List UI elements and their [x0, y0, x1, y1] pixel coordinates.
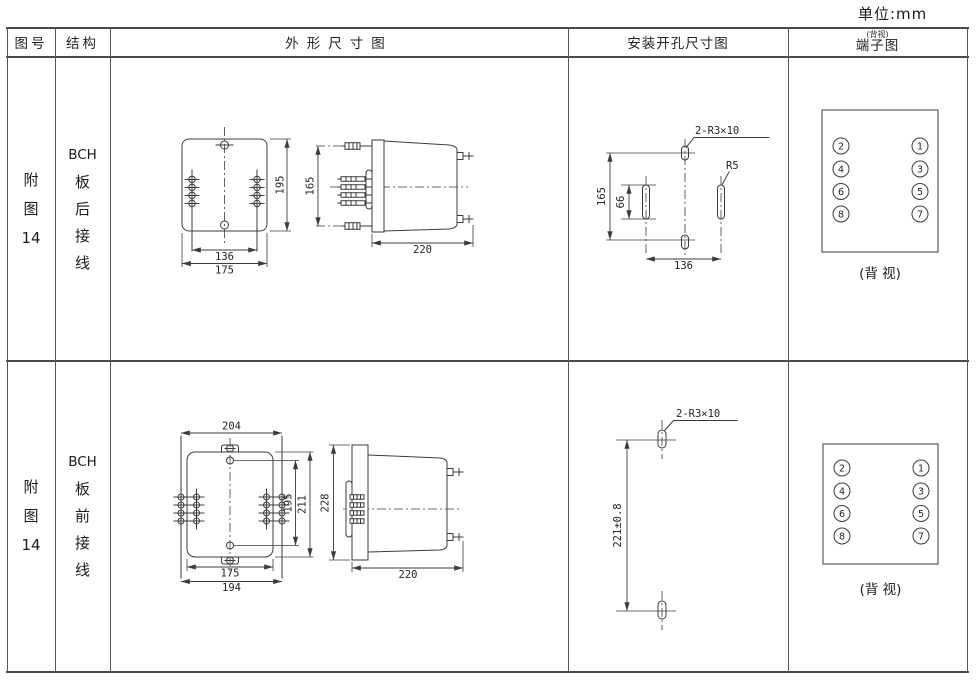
dim-hole-spacing: 221±0.8: [612, 503, 624, 547]
svg-text:6: 6: [839, 509, 845, 520]
dim-side-height2: 228: [320, 494, 332, 513]
dim-front-height: 195: [275, 176, 287, 195]
row2-terminal-diagram: 2 4 6 8 1 3 5 7 (背 视): [788, 361, 968, 672]
svg-text:5: 5: [917, 187, 923, 198]
svg-text:1: 1: [918, 463, 924, 474]
unit-label: 单位:mm: [858, 3, 927, 24]
row1-figure-no: 附 图 14: [7, 57, 55, 360]
header-terminal-label: 端子图: [856, 39, 900, 53]
dim-bolt-span: 136: [215, 251, 234, 263]
svg-text:7: 7: [917, 209, 923, 220]
row1-terminals: 2 4 6 8 1 3 5 7: [833, 138, 928, 222]
svg-text:7: 7: [918, 531, 924, 542]
header-structure: 结构: [55, 27, 110, 56]
dim-stud-span-top: 204: [222, 421, 241, 433]
row2-mounting-drawing: 2-R3×10 221±0.8: [569, 361, 786, 672]
dim-front-width: 175: [215, 265, 234, 277]
dim-side-height: 165: [305, 177, 317, 196]
row2-structure: BCH 板 前 接 线: [55, 361, 110, 671]
header-figure-no: 图号: [7, 27, 55, 56]
row2-front-terminals: [174, 494, 289, 524]
svg-text:6: 6: [838, 187, 844, 198]
row2-outline-drawing: 204 195 211 175 194: [110, 361, 569, 672]
svg-text:1: 1: [917, 141, 923, 152]
svg-text:4: 4: [838, 164, 844, 175]
svg-text:5: 5: [918, 509, 924, 520]
drawing-sheet: 单位:mm 图号 结构 外形尺寸图 安装开孔尺寸图 (背视) 端子图 附 图 1…: [0, 0, 978, 680]
svg-text:3: 3: [918, 486, 924, 497]
row1-terminal-diagram: 2 4 6 8 1 3 5 7 (背 视): [788, 57, 968, 361]
row1-side-view: 165 220: [305, 140, 474, 256]
svg-text:2: 2: [839, 463, 845, 474]
dim-inner-height: 195: [283, 494, 295, 513]
row2-terminal-caption: (背 视): [860, 582, 902, 598]
row2-front-view: 204 195 211 175 194: [174, 421, 314, 595]
svg-text:3: 3: [917, 164, 923, 175]
header-mounting: 安装开孔尺寸图: [568, 27, 788, 56]
dim-front-width2: 175: [221, 568, 240, 580]
row2-figure-no: 附 图 14: [7, 361, 55, 671]
svg-text:8: 8: [839, 531, 845, 542]
row2-terminals: 2 4 6 8 1 3 5 7: [834, 460, 929, 544]
row1-terminal-caption: (背 视): [859, 266, 901, 282]
label-radius: R5: [726, 160, 739, 172]
dim-span-height: 165: [596, 187, 608, 206]
label-slots: 2-R3×10: [695, 125, 739, 137]
dim-slot-height: 66: [615, 196, 627, 209]
header-outline: 外形尺寸图: [110, 27, 568, 56]
row1-front-view: 195 136 175: [182, 127, 291, 277]
row1-structure: BCH 板 后 接 线: [55, 57, 110, 360]
svg-text:8: 8: [838, 209, 844, 220]
svg-text:2: 2: [838, 141, 844, 152]
header-terminal: (背视) 端子图: [788, 27, 967, 56]
dim-span-width: 136: [674, 260, 693, 272]
dim-front-height2: 211: [297, 495, 309, 514]
svg-text:4: 4: [839, 486, 845, 497]
row1-outline-drawing: 195 136 175: [110, 57, 569, 361]
dim-depth: 220: [413, 244, 432, 256]
row2-side-view: 228 220: [320, 445, 464, 581]
dim-stud-span-bottom: 194: [222, 582, 241, 594]
label-slots2: 2-R3×10: [676, 408, 720, 420]
dim-depth2: 220: [399, 569, 418, 581]
row1-mounting-drawing: 165 66 R5 2-R3×10 136: [569, 57, 786, 361]
